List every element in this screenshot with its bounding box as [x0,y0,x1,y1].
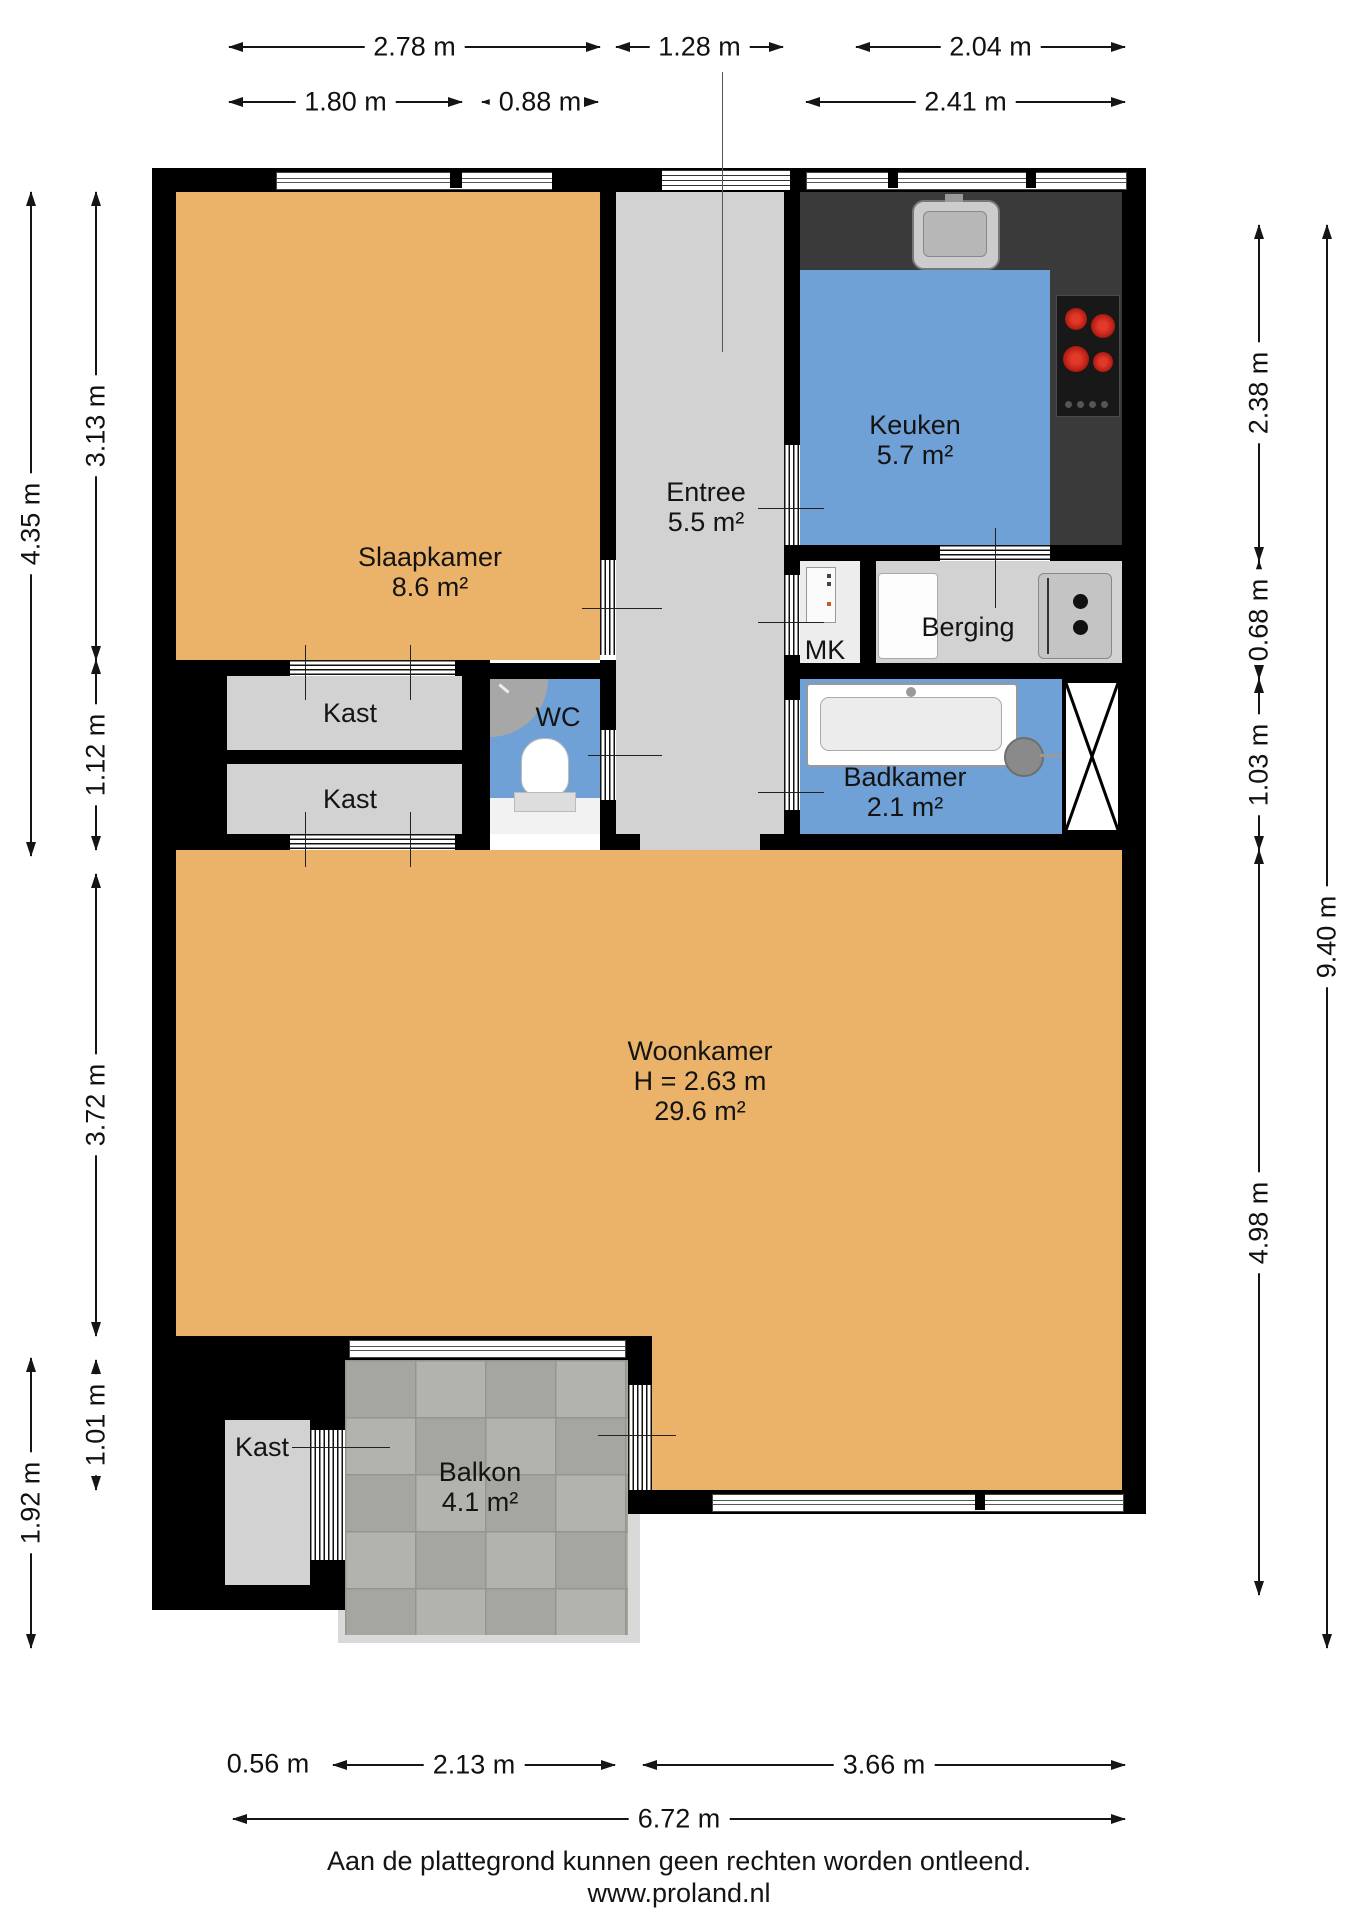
dim-label: 1.92 m [16,1453,47,1554]
dim-left-192: 1.92 m [30,1358,32,1648]
room-name: WC [536,702,581,732]
room-label-berging: Berging [921,612,1014,642]
room-area: 8.6 m² [358,572,502,602]
dim-bottom-366: 3.66 m [643,1764,1125,1766]
wall-pier [552,168,662,192]
stove-knob [1101,401,1108,408]
room-name: Keuken [869,410,961,440]
dim-bottom-672: 6.72 m [233,1818,1125,1820]
burner [1065,308,1087,330]
dim-right-103: 1.03 m [1258,679,1260,850]
room-area: 5.5 m² [666,507,746,537]
dim-left-112: 1.12 m [95,660,97,850]
wall-keuken-berging [800,545,940,561]
door-indicator-line [305,812,306,867]
kast-label-leader-line [292,1447,390,1448]
panel-dot [827,574,831,578]
keuken-door [784,445,800,545]
room-name: Woonkamer [627,1036,772,1066]
burner [1063,346,1089,372]
room-name: Kast [323,698,377,728]
room-name: Slaapkamer [358,542,502,572]
room-woonkamer-lower [652,1336,1122,1490]
kast-sliding-door [290,660,455,676]
room-label-wc: WC [536,702,581,732]
dim-left-372: 3.72 m [95,874,97,1336]
door-indicator-line [410,812,411,867]
wall-keuken-berging [1050,545,1122,561]
room-name: Entree [666,477,746,507]
panel-dot [827,602,831,606]
wc-door [600,730,616,800]
dim-label: 2.78 m [364,32,465,63]
sink-faucet [945,194,963,202]
dim-top-278: 2.78 m [229,46,600,48]
dim-label: 2.13 m [424,1750,525,1781]
meter-panel-icon [806,567,836,623]
room-name: Berging [921,612,1014,642]
wall-badkamer-woonkamer [760,834,1122,850]
wall-entree-keuken [784,192,800,445]
wall-mass-left [176,660,227,850]
door-indicator-line [758,508,824,509]
room-name: Badkamer [843,762,966,792]
balkon-rail [338,1635,640,1643]
room-label-kast-onder: Kast [323,784,377,814]
room-name: Kast [235,1432,289,1462]
dim-label: 0.68 m [1244,570,1275,671]
bathtub-icon [806,683,1018,767]
dimension-extension-line [722,72,723,352]
room-label-mk: MK [805,635,846,665]
door-indicator-line [588,755,662,756]
wall-jamb [616,834,640,850]
dim-left-313: 3.13 m [95,192,97,660]
wall-wc-entree [600,660,616,730]
wall-kast-divider [227,750,462,764]
dim-label: 6.72 m [629,1804,730,1835]
room-name: Kast [323,784,377,814]
room-name: MK [805,635,846,665]
dim-label: 2.41 m [915,87,1016,118]
wall-kast-woonkamer [176,834,290,850]
window-mullion [1026,172,1036,188]
wall-kast-wc [462,660,490,850]
dim-label: 1.01 m [81,1375,112,1476]
wall-balkon-right [628,1336,652,1385]
stove-knob [1065,401,1072,408]
slaapkamer-window [276,172,554,190]
kast-sliding-door [290,834,455,850]
front-door [662,170,790,190]
room-height: H = 2.63 m [627,1066,772,1096]
dim-label: 2.38 m [1244,343,1275,444]
dim-left-101: 1.01 m [95,1360,97,1490]
washing-machine-icon [1038,573,1112,659]
room-area: 2.1 m² [843,792,966,822]
balkon-rail [338,1610,345,1643]
woonkamer-window [712,1494,1124,1512]
sink-faucet [498,683,509,693]
panel-dot [827,582,831,586]
dim-label: 1.12 m [81,705,112,806]
footer-website: www.proland.nl [587,1878,770,1909]
room-label-woonkamer: Woonkamer H = 2.63 m 29.6 m² [627,1036,772,1126]
room-label-badkamer: Badkamer 2.1 m² [843,762,966,822]
stove-icon [1056,295,1120,417]
wall-left [152,168,176,1336]
badkamer-door [784,700,800,810]
room-area: 29.6 m² [627,1096,772,1126]
wall-slaapkamer-entree [600,192,616,560]
toilet-icon [521,738,569,796]
window-mullion [888,172,898,188]
wall-wc-entree [600,800,616,850]
room-area: 4.1 m² [439,1487,522,1517]
burner [1091,314,1115,338]
dim-label: 1.80 m [295,87,396,118]
sink-basin [923,211,987,257]
dim-label: 1.03 m [1244,714,1275,815]
bathtub-basin [820,697,1002,751]
wall-mk-berging [860,561,876,663]
door-indicator-line [410,645,411,700]
toilet-tank [514,792,576,812]
burner [1093,352,1113,372]
dim-label: 4.98 m [1244,1172,1275,1273]
room-label-kast-balkon: Kast [235,1432,289,1462]
wall-berging-badkamer [784,663,1122,679]
door-indicator-line [995,528,996,608]
balkon-door [628,1385,652,1490]
dim-left-435: 4.35 m [30,192,32,856]
dim-label: 9.40 m [1312,886,1343,987]
dim-bottom-056: 0.56 m [227,1749,310,1780]
shaft-x-icon [1066,683,1118,830]
room-label-kast-boven: Kast [323,698,377,728]
wall-segment [784,545,800,575]
kitchen-sink-icon [912,200,1000,270]
dim-label: 3.66 m [834,1750,935,1781]
room-name: Balkon [439,1457,522,1487]
dim-label: 4.35 m [16,474,47,575]
door-indicator-line [305,645,306,700]
balkon-rail [628,1514,640,1643]
dim-right-940: 9.40 m [1326,225,1328,1648]
room-label-balkon: Balkon 4.1 m² [439,1457,522,1517]
dim-top-088: 0.88 m [482,101,598,103]
washer-dot [1073,594,1088,609]
floor-plan: Slaapkamer 8.6 m² Entree 5.5 m² Keuken 5… [0,0,1358,1920]
room-area: 5.7 m² [869,440,961,470]
mk-door [784,575,800,655]
keuken-window [806,172,1127,190]
dim-top-204: 2.04 m [856,46,1125,48]
wall-wc-top [490,663,616,679]
window-mullion [450,172,462,188]
bathtub-faucet [906,687,916,697]
dim-right-498: 4.98 m [1258,850,1260,1595]
wall-right [1122,168,1146,1514]
window-mullion [975,1494,985,1510]
dim-label: 0.88 m [490,87,591,118]
dim-top-128: 1.28 m [616,46,783,48]
dim-right-068: 0.68 m [1258,561,1260,679]
dim-top-241: 2.41 m [806,101,1125,103]
door-indicator-line [758,622,824,623]
stove-knob [1077,401,1084,408]
dim-label: 3.13 m [81,376,112,477]
room-label-keuken: Keuken 5.7 m² [869,410,961,470]
door-indicator-line [582,608,662,609]
washer-door-line [1047,578,1049,654]
dim-label: 1.28 m [649,32,750,63]
room-label-slaapkamer: Slaapkamer 8.6 m² [358,542,502,602]
shaft [1062,679,1122,834]
door-indicator-line [598,1435,676,1436]
stove-knob [1089,401,1096,408]
dim-bottom-213: 2.13 m [333,1764,615,1766]
balkon-window [349,1340,626,1358]
dim-label: 3.72 m [81,1055,112,1156]
door-indicator-line [758,792,824,793]
shower-head-icon [1004,737,1044,777]
washer-dot [1073,620,1088,635]
kast-door [310,1430,345,1560]
room-label-entree: Entree 5.5 m² [666,477,746,537]
dim-label: 2.04 m [940,32,1041,63]
dim-right-238: 2.38 m [1258,225,1260,561]
footer-disclaimer: Aan de plattegrond kunnen geen rechten w… [327,1846,1031,1877]
dim-top-180: 1.80 m [229,101,462,103]
